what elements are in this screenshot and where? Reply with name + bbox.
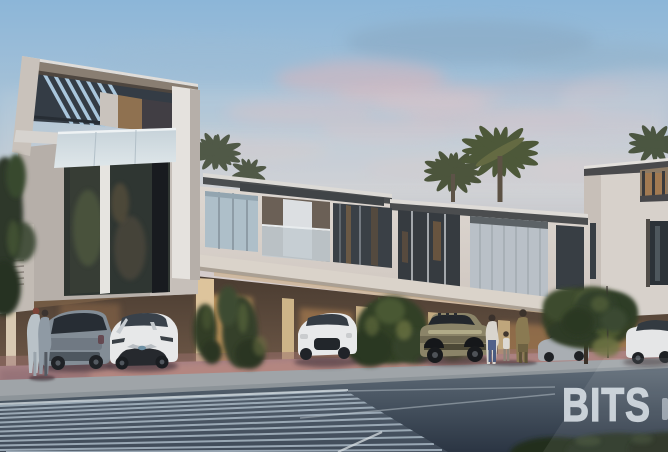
svg-text:BITS: BITS: [562, 379, 651, 432]
